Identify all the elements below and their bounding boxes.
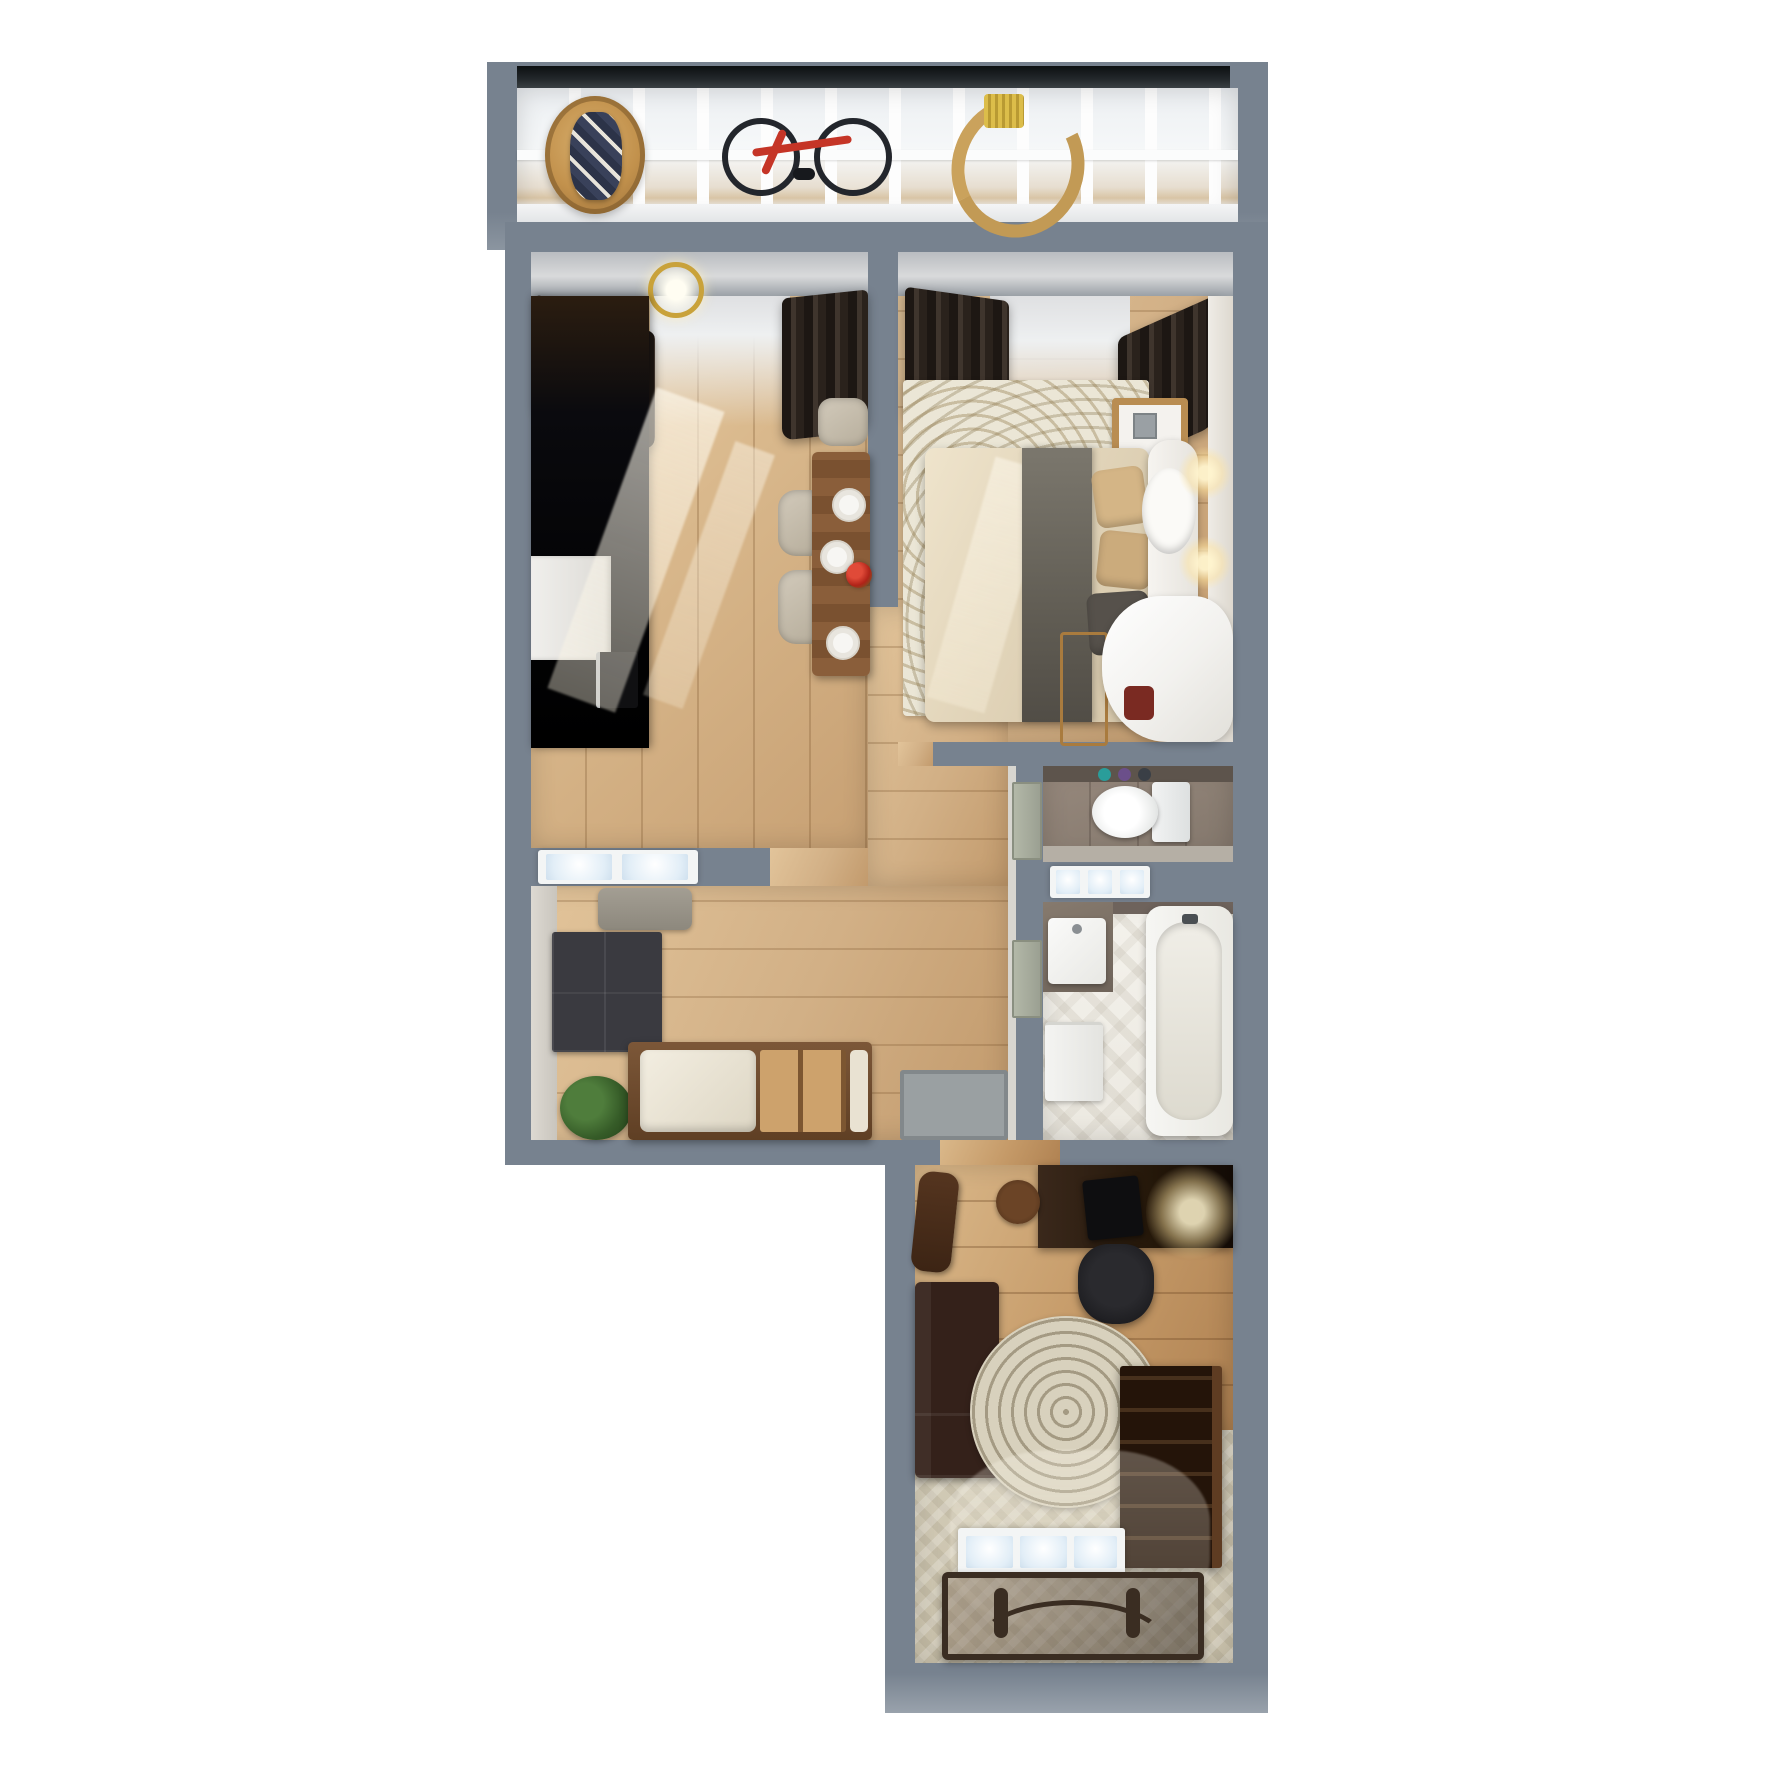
kitchen-transom-window xyxy=(538,850,698,884)
wall-living-bedroom xyxy=(868,252,898,607)
toilet-bowl xyxy=(1092,786,1158,838)
dining-chair-left xyxy=(778,490,816,556)
side-table xyxy=(996,1180,1040,1224)
daybed-cushion xyxy=(850,1050,868,1132)
daybed-wood-panels xyxy=(760,1050,846,1132)
baby-crib xyxy=(1060,632,1108,746)
monitor xyxy=(1082,1175,1144,1241)
bedroom-doorway xyxy=(898,742,933,766)
wall-sconce xyxy=(1178,536,1232,590)
console-leg xyxy=(994,1588,1008,1638)
pillow-beige xyxy=(1090,465,1150,530)
crib-canopy xyxy=(1102,596,1233,742)
window-pane xyxy=(622,854,688,880)
pillow-beige xyxy=(1095,529,1155,590)
plaid-blanket xyxy=(570,112,622,200)
daybed-cushion xyxy=(640,1050,756,1132)
plate xyxy=(826,626,860,660)
entry-bench xyxy=(598,888,692,930)
bathroom-transom-window xyxy=(1050,866,1150,898)
lounge-doorway xyxy=(940,1140,1060,1165)
window-pane xyxy=(1120,870,1144,894)
washing-machine xyxy=(1045,1022,1103,1101)
towel-roll xyxy=(1118,768,1131,781)
window-pane xyxy=(966,1536,1013,1568)
window-pane xyxy=(1074,1536,1117,1568)
photo-frame xyxy=(1133,413,1157,439)
bicycle-saddle xyxy=(793,168,815,180)
bath-faucet xyxy=(1182,914,1198,924)
bicycle-wheel-right xyxy=(814,118,892,196)
wooden-brush xyxy=(984,94,1024,128)
balcony-top-frame xyxy=(517,66,1230,88)
bathroom-door xyxy=(1012,940,1042,1018)
bathtub-basin xyxy=(1156,922,1222,1120)
toilet-door xyxy=(1012,782,1042,860)
floor-plan xyxy=(0,0,1776,1776)
window-pane xyxy=(1088,870,1112,894)
plate xyxy=(832,488,866,522)
doormat xyxy=(900,1070,1008,1140)
red-flowers xyxy=(846,562,872,588)
office-chair xyxy=(1078,1244,1154,1324)
wall-sconce xyxy=(1178,446,1232,500)
toilet-door-zone xyxy=(1043,846,1233,862)
dining-chair-top xyxy=(818,398,868,446)
bathtub xyxy=(1146,906,1233,1136)
towel-roll xyxy=(1098,768,1111,781)
faucet xyxy=(1072,924,1082,934)
towel-roll xyxy=(1138,768,1151,781)
kitchen-passage xyxy=(770,848,868,886)
maroon-cushion xyxy=(1124,686,1154,720)
bicycle-wheel-left xyxy=(722,118,800,196)
balcony-sill xyxy=(517,204,1238,222)
dining-chair-left xyxy=(778,570,816,644)
window-pane xyxy=(1020,1536,1067,1568)
plant xyxy=(560,1076,632,1140)
platform-daybed xyxy=(628,1042,872,1140)
window-pane xyxy=(1056,870,1080,894)
entry-wardrobe xyxy=(552,932,662,1052)
console-leg xyxy=(1126,1588,1140,1638)
desk-lamp-glow xyxy=(1146,1162,1238,1262)
glass-console xyxy=(942,1572,1204,1660)
window-pane xyxy=(546,854,612,880)
bathroom-sink xyxy=(1048,918,1106,984)
chandelier xyxy=(648,262,704,318)
lounge-window xyxy=(958,1528,1125,1576)
bedroom-window-top xyxy=(898,252,1233,296)
